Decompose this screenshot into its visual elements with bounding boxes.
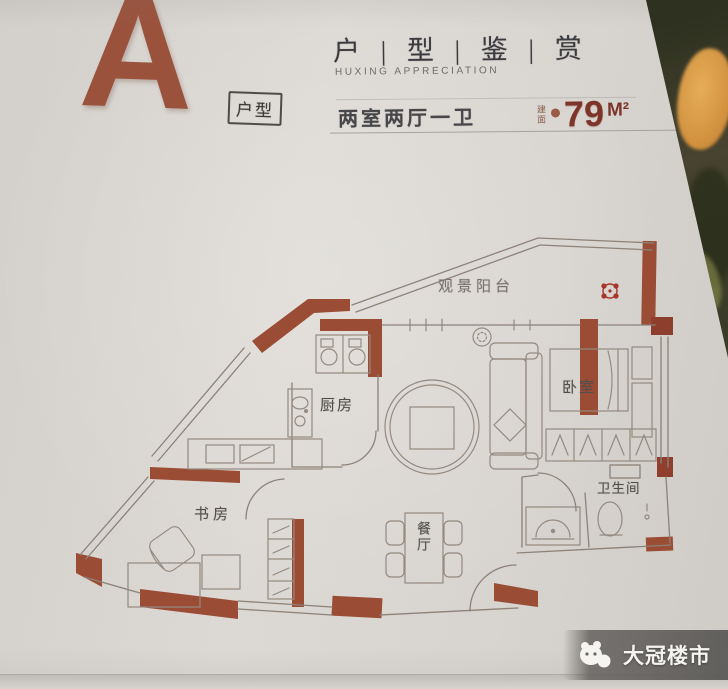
floor-drain-icon (645, 504, 649, 519)
panda-mascot-icon (577, 638, 615, 672)
area-unit: M² (607, 99, 629, 121)
sofa-icon (490, 343, 542, 469)
wall-lines (80, 238, 671, 615)
counter-cabinet-icon (188, 439, 322, 469)
watermark: 大冠楼市 (563, 630, 728, 680)
floorplan: 观景阳台 厨房 卧室 书房 餐厅 卫生间 (70, 225, 690, 655)
office-chair-icon (145, 524, 197, 575)
rug-icon (385, 380, 479, 474)
nightstand-icon (632, 347, 652, 379)
toilet-icon (598, 502, 622, 536)
area-label: 建面 (536, 105, 546, 125)
flower-stamp-icon (601, 283, 618, 298)
coffee-table-icon (410, 407, 454, 449)
area-value: 79 (564, 96, 605, 133)
layout-spec: 两室两厅一卫 (338, 101, 476, 131)
room-label-balcony: 观景阳台 (438, 275, 514, 296)
area-group: 建面 79 M² (536, 93, 640, 132)
furniture (128, 328, 656, 607)
page-subtitle: HUXING APPRECIATION (335, 65, 499, 78)
brochure-page: A 户型 户 | 型 | 鉴 | 赏 HUXING APPRECIATION 两… (0, 0, 728, 688)
background-orange-object (671, 45, 728, 154)
stove-icon (316, 335, 370, 373)
hall-cabinet-icon (268, 519, 294, 599)
wall-segments (76, 241, 673, 619)
floorplan-drawing (70, 225, 690, 655)
cushion-icon (494, 409, 526, 441)
bathroom-door-arc (538, 473, 576, 511)
window-lines-bottom (238, 601, 332, 615)
plant-icon (473, 328, 491, 346)
watermark-brand: 大冠楼市 (623, 640, 711, 670)
kitchen-door-arc (342, 431, 376, 465)
room-label-bedroom: 卧室 (562, 376, 596, 397)
wash-basin-icon (526, 507, 580, 545)
page-title: 户 | 型 | 鉴 | 赏 (333, 27, 589, 69)
plan-type-tag: 户型 (227, 91, 282, 126)
window-lines-left (152, 348, 250, 461)
wardrobe-icon (546, 429, 656, 461)
dot-separator-icon (551, 108, 560, 117)
study-door-arc (246, 479, 284, 519)
room-label-study: 书房 (194, 503, 232, 524)
room-label-kitchen: 厨房 (320, 394, 354, 415)
side-table-icon (202, 555, 240, 589)
plan-letter: A (77, 0, 197, 134)
window-lines-study (80, 477, 154, 559)
room-label-bathroom: 卫生间 (597, 477, 641, 497)
room-label-dining: 餐厅 (414, 521, 434, 553)
